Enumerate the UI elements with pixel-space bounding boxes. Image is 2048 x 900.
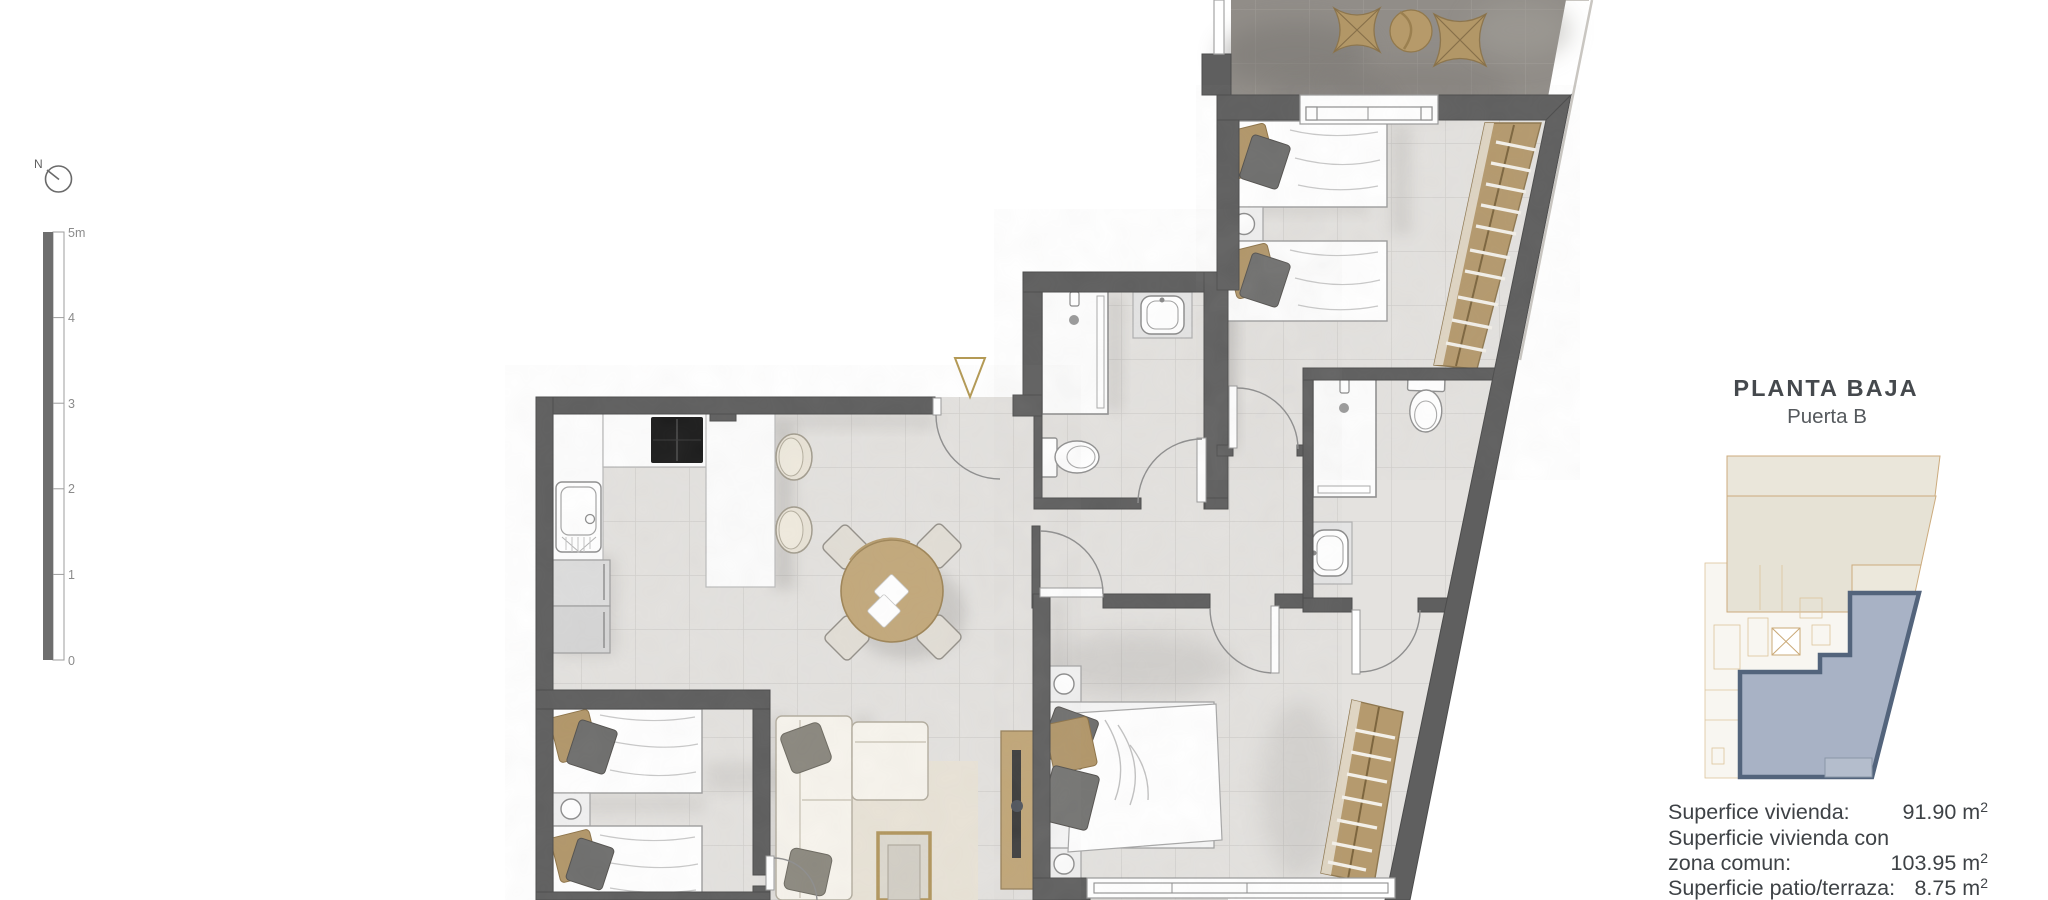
svg-text:1: 1 (68, 568, 75, 582)
svg-text:103.95 m2: 103.95 m2 (1891, 850, 1989, 875)
svg-text:Superfice vivienda:: Superfice vivienda: (1668, 800, 1850, 824)
svg-text:zona comun:: zona comun: (1668, 851, 1791, 875)
svg-text:Superficie vivienda con: Superficie vivienda con (1668, 826, 1889, 850)
svg-text:Superficie patio/terraza:: Superficie patio/terraza: (1668, 876, 1895, 900)
svg-text:8.75 m2: 8.75 m2 (1914, 875, 1988, 900)
svg-text:3: 3 (68, 397, 75, 411)
svg-text:2: 2 (68, 482, 75, 496)
svg-text:PLANTA BAJA: PLANTA BAJA (1733, 375, 1918, 401)
svg-text:4: 4 (68, 311, 75, 325)
svg-text:Puerta B: Puerta B (1787, 405, 1867, 428)
svg-text:N: N (34, 157, 43, 171)
svg-text:5m: 5m (68, 226, 85, 240)
svg-text:0: 0 (68, 654, 75, 668)
svg-text:91.90 m2: 91.90 m2 (1903, 799, 1989, 824)
